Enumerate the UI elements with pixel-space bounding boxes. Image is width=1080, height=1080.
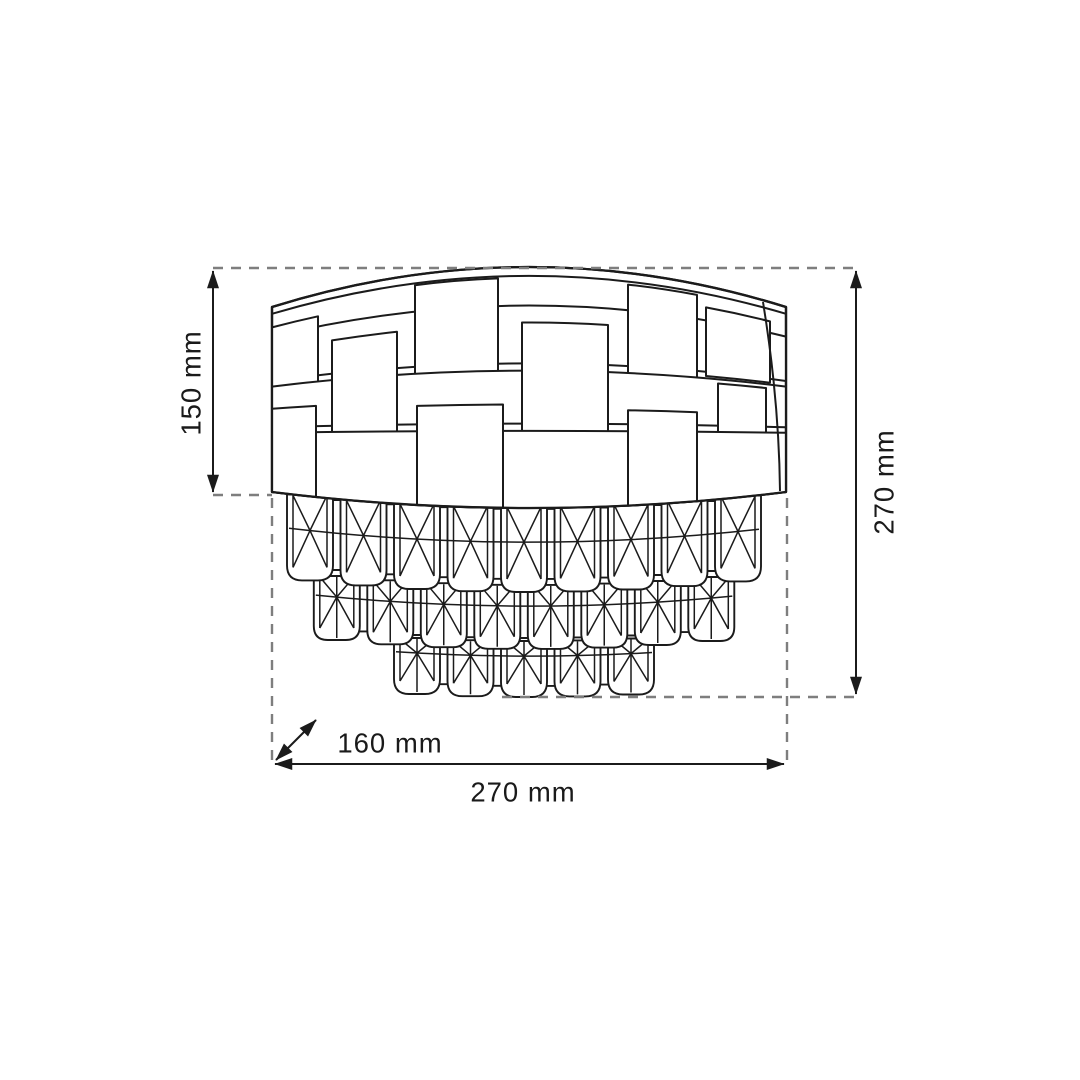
dim-label-total-height: 270 mm	[869, 429, 900, 534]
woven-drum-shade	[272, 267, 786, 508]
crystal-drops	[287, 494, 761, 697]
dim-label-depth: 160 mm	[337, 728, 442, 759]
dim-label-shade-height: 150 mm	[176, 330, 207, 435]
dim-label-width: 270 mm	[470, 777, 575, 808]
lamp-technical-drawing: 150 mm 270 mm 160 mm 270 mm	[0, 0, 1080, 1080]
product-dimension-diagram: 150 mm 270 mm 160 mm 270 mm	[0, 0, 1080, 1080]
dim-arrow-depth	[276, 720, 316, 760]
